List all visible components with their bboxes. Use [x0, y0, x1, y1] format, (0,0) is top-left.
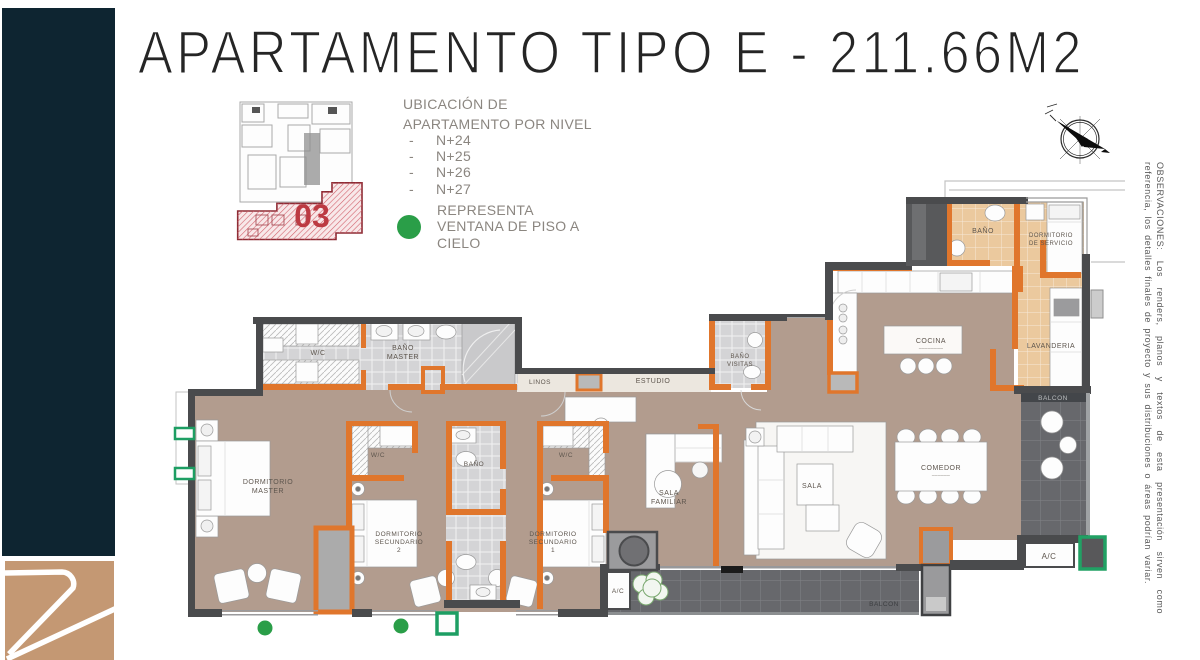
svg-text:DORMITORIO: DORMITORIO	[243, 479, 293, 486]
svg-text:MASTER: MASTER	[387, 354, 419, 361]
svg-text:SALA: SALA	[659, 490, 679, 497]
svg-text:2: 2	[397, 547, 401, 554]
svg-text:FAMILIAR: FAMILIAR	[651, 499, 687, 506]
svg-text:BALCON: BALCON	[1038, 395, 1068, 402]
svg-text:A/C: A/C	[1042, 552, 1057, 561]
svg-text:W/C: W/C	[371, 452, 385, 459]
svg-text:BAÑO: BAÑO	[392, 343, 414, 352]
svg-text:LINOS: LINOS	[529, 379, 551, 386]
svg-text:DORMITORIO: DORMITORIO	[529, 531, 576, 538]
svg-text:1: 1	[551, 547, 555, 554]
svg-text:A/C: A/C	[612, 588, 624, 595]
svg-text:BAÑO: BAÑO	[730, 353, 749, 360]
svg-text:SALA: SALA	[802, 483, 822, 490]
svg-text:MASTER: MASTER	[252, 488, 284, 495]
svg-text:DE SERVICIO: DE SERVICIO	[1029, 241, 1073, 247]
svg-text:COCINA: COCINA	[916, 338, 946, 345]
svg-text:W/C: W/C	[310, 350, 325, 357]
svg-text:ESTUDIO: ESTUDIO	[636, 378, 671, 385]
svg-text:VISITAS: VISITAS	[727, 362, 753, 368]
svg-text:────────: ────────	[918, 346, 943, 351]
svg-text:LAVANDERIA: LAVANDERIA	[1027, 343, 1075, 350]
svg-text:──────: ──────	[931, 473, 950, 478]
svg-text:SECUNDARIO: SECUNDARIO	[375, 539, 423, 546]
svg-text:DORMITORIO: DORMITORIO	[375, 531, 422, 538]
svg-text:W/C: W/C	[559, 452, 573, 459]
svg-text:DORMITORIO: DORMITORIO	[1029, 233, 1073, 239]
svg-text:SECUNDARIO: SECUNDARIO	[529, 539, 577, 546]
svg-text:COMEDOR: COMEDOR	[921, 465, 961, 472]
svg-text:BAÑO: BAÑO	[972, 226, 994, 235]
svg-text:BAÑO: BAÑO	[464, 459, 484, 468]
svg-text:BALCON: BALCON	[869, 601, 899, 608]
